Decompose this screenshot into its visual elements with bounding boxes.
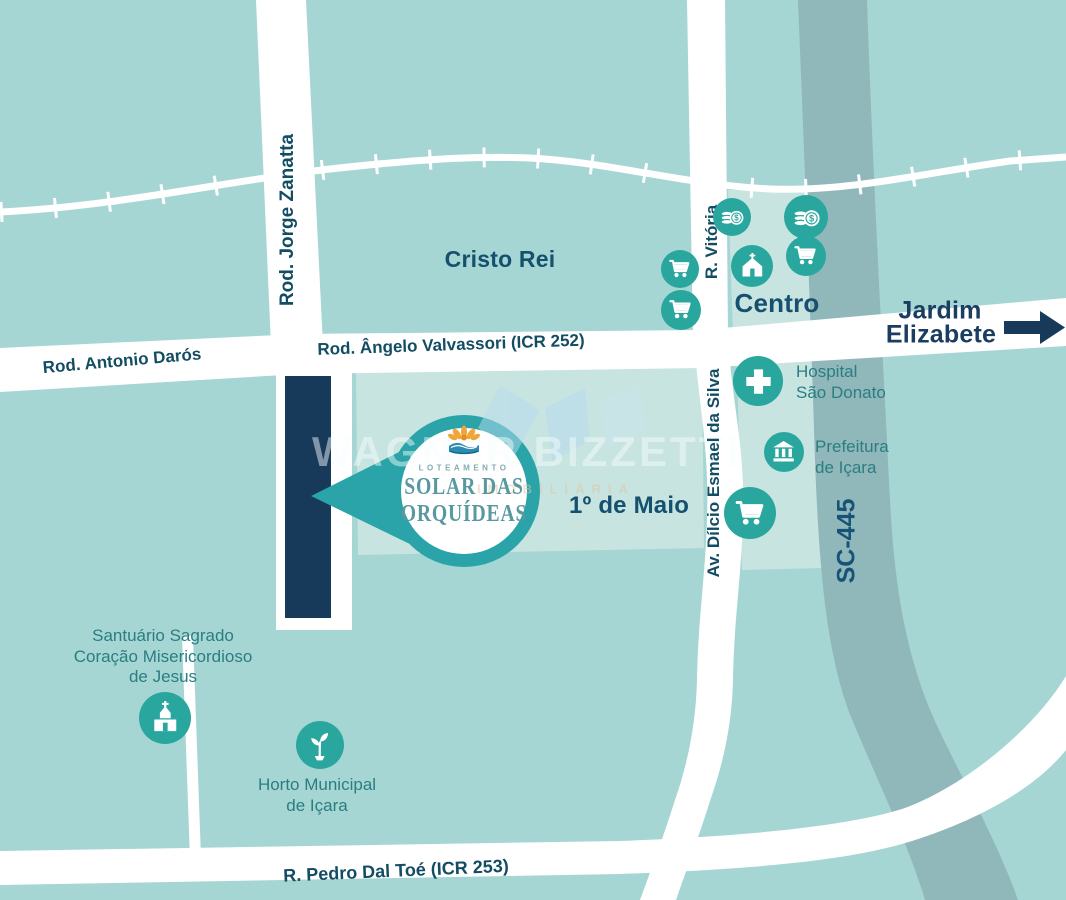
horto-label-line2: de Içara <box>258 796 376 817</box>
logo-flower-icon <box>446 424 482 458</box>
bank-coins-icon-2: $ <box>784 195 828 239</box>
santuario-church-icon <box>139 692 191 744</box>
road-label-jorge-zanatta: Rod. Jorge Zanatta <box>277 134 299 306</box>
svg-text:$: $ <box>809 213 815 223</box>
santuario-label-line1: Santuário Sagrado <box>74 626 253 647</box>
neighborhood-jardim-line2: Elizabete <box>886 321 996 350</box>
location-map: WAGNER BIZZETTI IMOBILIÁRIA LOTEAMENTO S… <box>0 0 1066 900</box>
bank-coins-icon-1: $ <box>713 198 751 236</box>
road-label-sc445: SC-445 <box>833 499 862 584</box>
logo-name-line1: SOLAR DAS <box>404 474 523 502</box>
horto-label-line1: Horto Municipal <box>258 775 376 796</box>
prefeitura-label-line2: de Içara <box>815 458 889 479</box>
neighborhood-centro: Centro <box>735 289 820 319</box>
logo-name-line2: ORQUÍDEAS <box>401 501 528 529</box>
santuario-label-line3: de Jesus <box>74 667 253 688</box>
logo-tagline: LOTEAMENTO <box>419 463 510 472</box>
railway-ticks <box>0 157 1066 212</box>
road-label-dilcio: Av. Dílcio Esmael da Silva <box>704 369 724 578</box>
horto-plant-icon <box>296 721 344 769</box>
prefeitura-building-icon <box>764 432 804 472</box>
road-vitoria <box>687 0 728 336</box>
hospital-cross-icon <box>733 356 783 406</box>
neighborhood-primeiro-de-maio: 1º de Maio <box>569 492 689 520</box>
neighborhood-cristo-rei: Cristo Rei <box>445 246 556 272</box>
hospital-label-line1: Hospital <box>796 362 886 383</box>
watermark-name: WAGNER BIZZETTI <box>312 428 742 476</box>
supermarket-cart-icon-1 <box>661 250 699 288</box>
supermarket-cart-icon-4 <box>724 487 776 539</box>
svg-text:$: $ <box>734 214 739 223</box>
hospital-label-line2: São Donato <box>796 383 886 404</box>
supermarket-cart-icon-2 <box>661 290 701 330</box>
santuario-label-line2: Coração Misericordioso <box>74 647 253 668</box>
supermarket-cart-icon-3 <box>786 236 826 276</box>
centro-church-icon <box>731 245 773 287</box>
prefeitura-label-line1: Prefeitura <box>815 437 889 458</box>
